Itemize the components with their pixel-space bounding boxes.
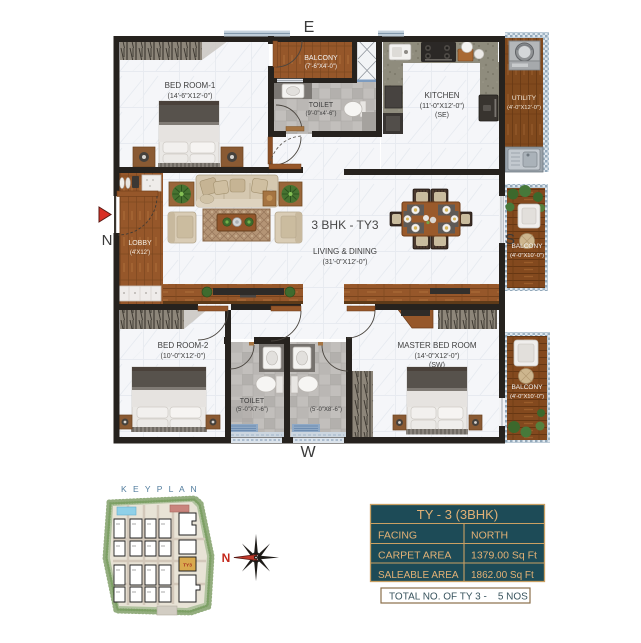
svg-text:(SW): (SW) (429, 362, 445, 369)
svg-text:(7'-6"X4'-0"): (7'-6"X4'-0") (305, 64, 337, 70)
svg-text:(5'-0"X8'-6"): (5'-0"X8'-6") (310, 407, 342, 413)
svg-text:K E Y P L A N: K E Y P L A N (121, 484, 199, 494)
svg-text:TOTAL NO. OF TY 3 -5 NOS: TOTAL NO. OF TY 3 -5 NOS (389, 592, 528, 603)
svg-text:W: W (300, 444, 316, 461)
svg-text:(31'-0"X12'-0"): (31'-0"X12'-0") (323, 259, 368, 266)
svg-text:N: N (102, 232, 113, 249)
svg-text:BED ROOM-2: BED ROOM-2 (158, 341, 209, 350)
svg-text:(10'-0"X12'-0"): (10'-0"X12'-0") (161, 353, 206, 360)
svg-text:(14'-0"X12'-0"): (14'-0"X12'-0") (415, 353, 460, 360)
svg-text:CARPET AREA: CARPET AREA (378, 550, 451, 562)
svg-text:NORTH: NORTH (471, 530, 508, 542)
svg-text:(4'-0"X10'-0"): (4'-0"X10'-0") (510, 394, 544, 400)
svg-text:(11'-0"X12'-0"): (11'-0"X12'-0") (420, 103, 464, 110)
svg-text:BALCONY: BALCONY (304, 55, 338, 62)
svg-text:MASTER BED ROOM: MASTER BED ROOM (397, 341, 476, 350)
svg-text:1379.00 Sq Ft: 1379.00 Sq Ft (471, 550, 537, 562)
svg-text:(4'X12'): (4'X12') (130, 250, 150, 256)
svg-text:SALEABLE AREA: SALEABLE AREA (378, 570, 459, 581)
svg-text:E: E (304, 19, 315, 36)
svg-text:(9'-0"x4'-6"): (9'-0"x4'-6") (306, 111, 337, 117)
svg-text:BED ROOM-1: BED ROOM-1 (165, 81, 216, 90)
svg-text:(14'-6"X12'-0"): (14'-6"X12'-0") (168, 93, 213, 100)
svg-text:BALCONY: BALCONY (511, 384, 543, 391)
svg-text:(4'-0"X12'-0"): (4'-0"X12'-0") (507, 105, 541, 111)
svg-text:N: N (222, 551, 231, 565)
svg-text:LIVING & DINING: LIVING & DINING (313, 247, 377, 256)
svg-text:BALCONY: BALCONY (511, 243, 543, 250)
svg-text:TOILET: TOILET (240, 398, 265, 405)
svg-text:TY3: TY3 (183, 563, 192, 569)
svg-text:1862.00 Sq Ft: 1862.00 Sq Ft (471, 570, 534, 581)
svg-text:UTILITY: UTILITY (512, 95, 537, 102)
svg-text:TOILET: TOILET (309, 102, 334, 109)
svg-text:3 BHK - TY3: 3 BHK - TY3 (311, 218, 378, 232)
svg-text:(SE): (SE) (435, 112, 449, 119)
svg-text:KITCHEN: KITCHEN (424, 91, 459, 100)
svg-text:FACING: FACING (378, 530, 417, 542)
svg-text:(4'-0"X10'-0"): (4'-0"X10'-0") (510, 253, 544, 259)
svg-text:LOBBY: LOBBY (128, 240, 152, 247)
svg-text:TY - 3 (3BHK): TY - 3 (3BHK) (417, 507, 498, 522)
svg-text:(5'-0"X7'-6"): (5'-0"X7'-6") (236, 407, 268, 413)
